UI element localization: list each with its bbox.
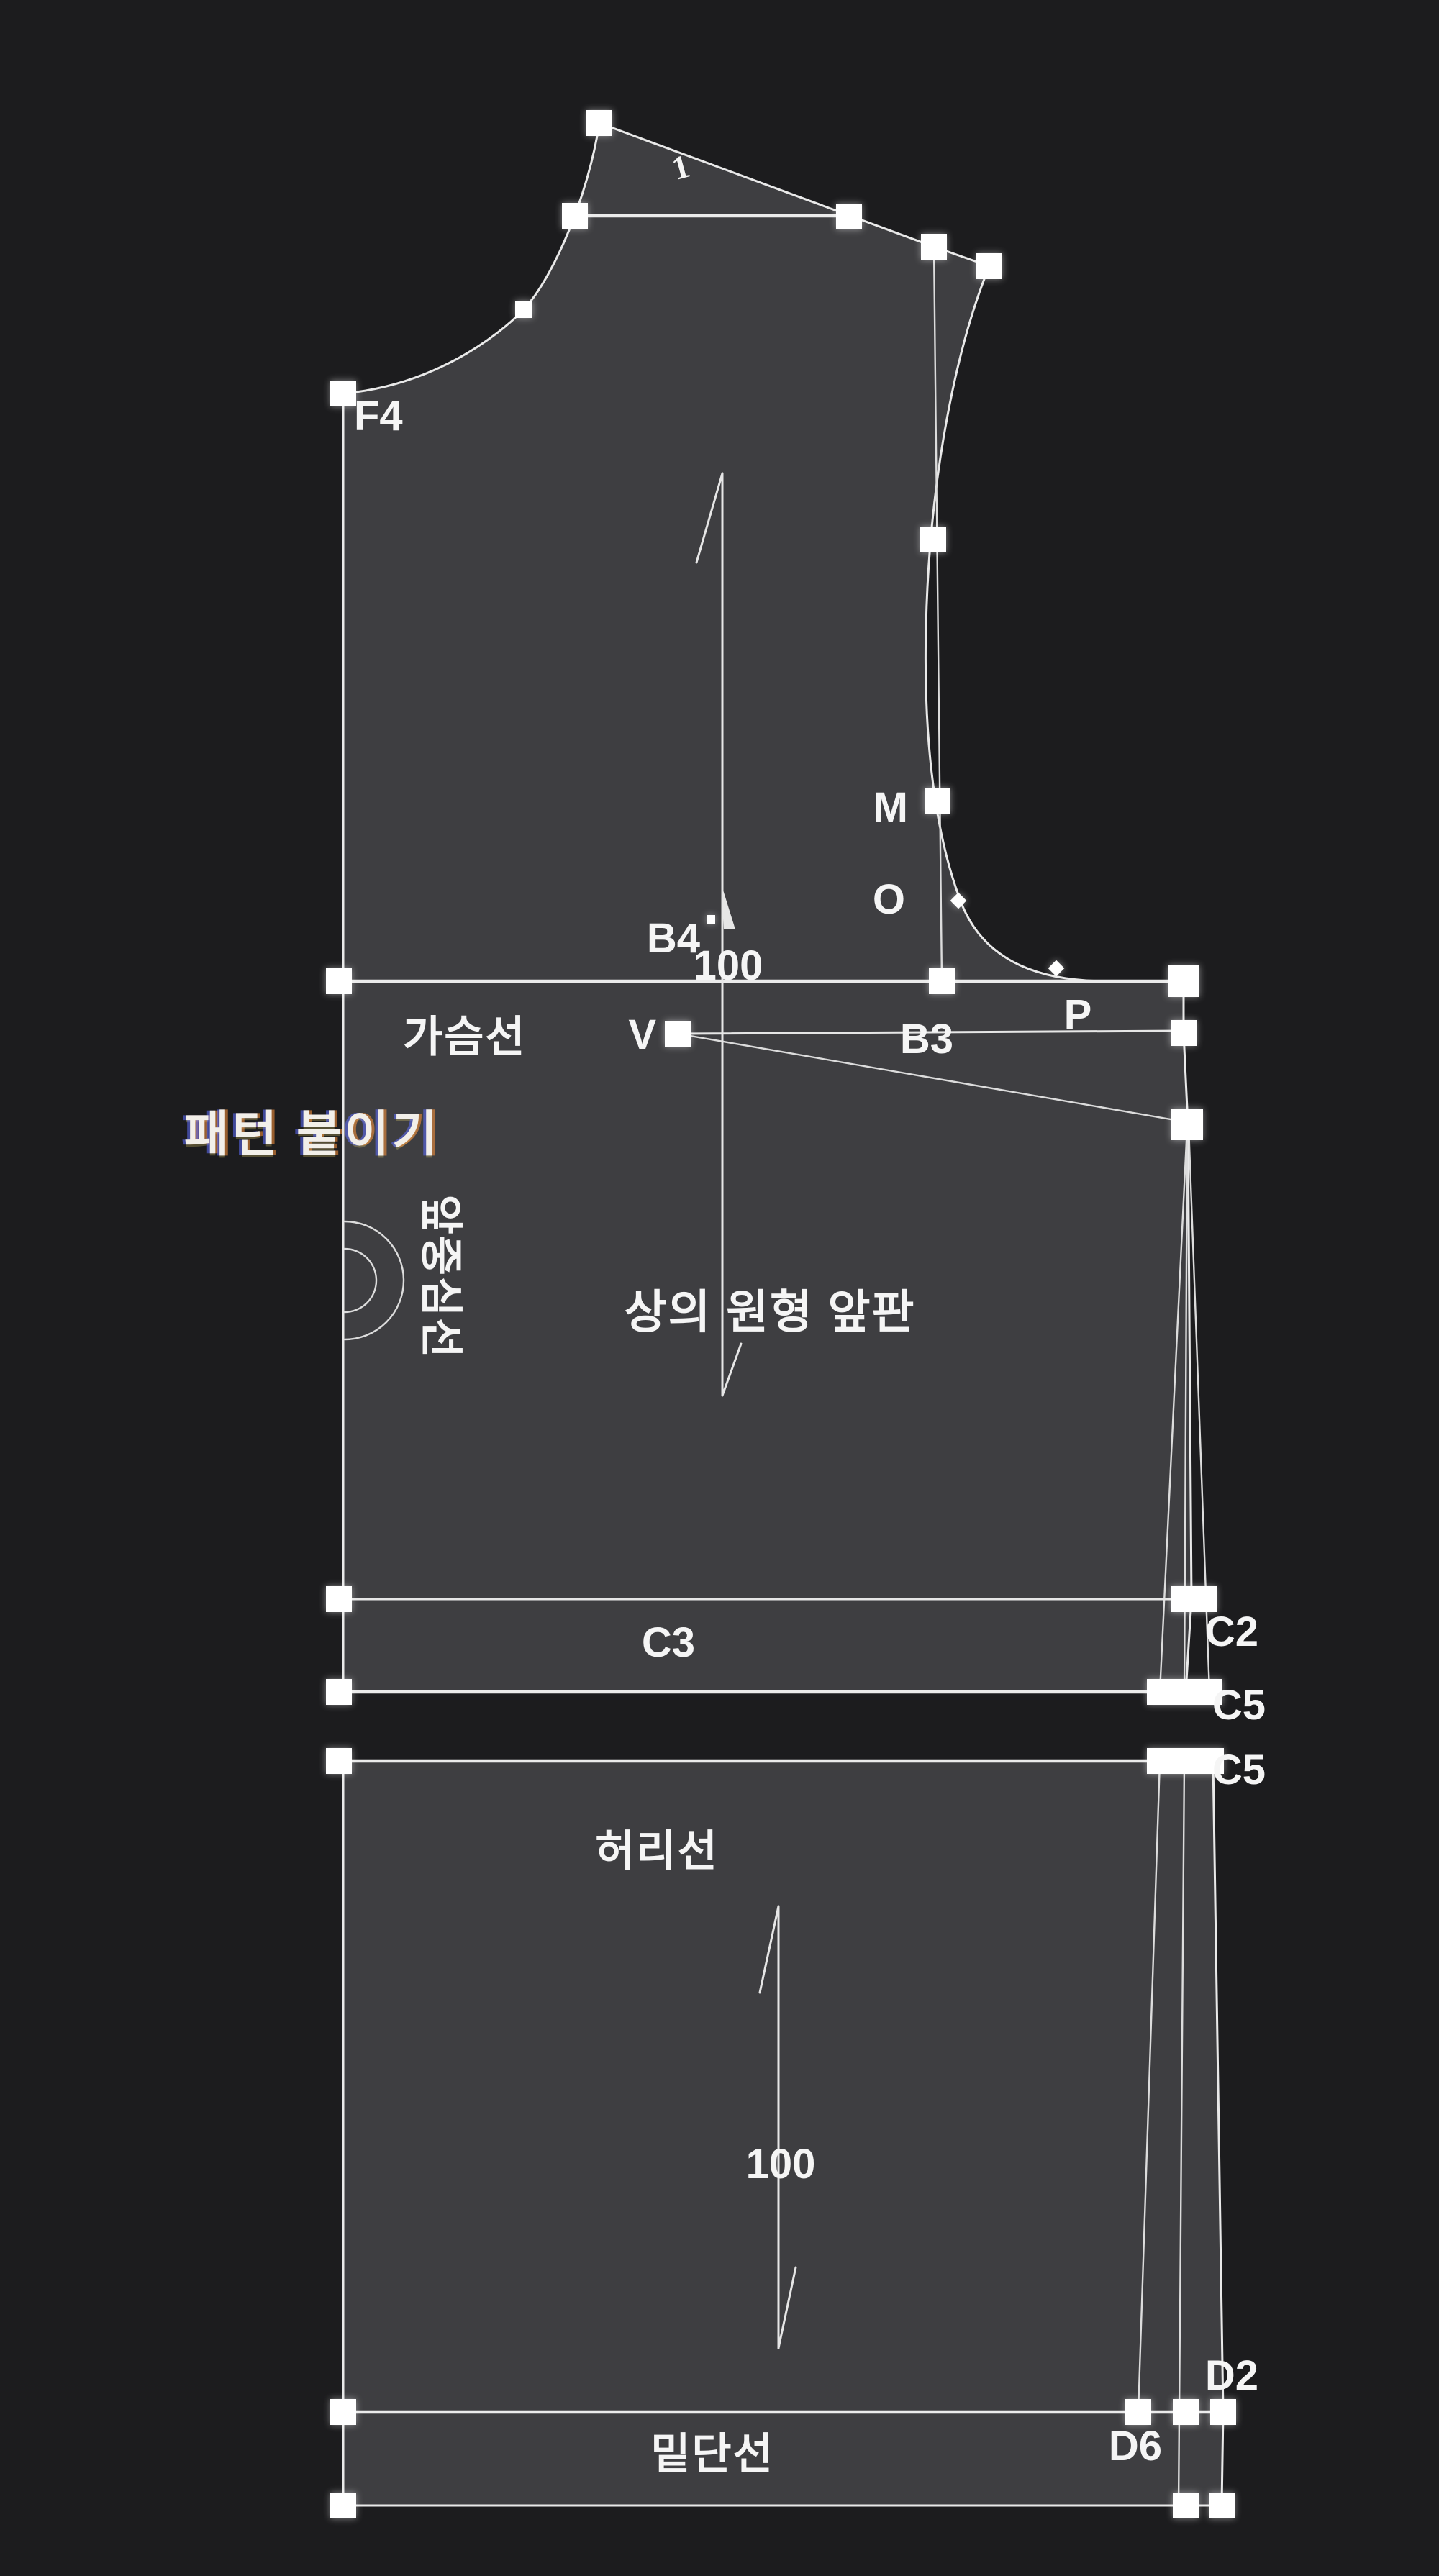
handle-bottom-left[interactable] bbox=[330, 2493, 356, 2518]
handle-dart-top[interactable] bbox=[1171, 1020, 1197, 1046]
label-b3: B3 bbox=[900, 1016, 953, 1062]
handle-armhole-upper[interactable] bbox=[920, 527, 946, 552]
label-o: O bbox=[873, 876, 905, 923]
label-dim-lower: 100 bbox=[746, 2141, 816, 2188]
handle-f4[interactable] bbox=[330, 381, 356, 406]
handle-dart-bottom[interactable] bbox=[1171, 1109, 1203, 1140]
label-f4: F4 bbox=[354, 393, 403, 440]
label-d6: D6 bbox=[1109, 2423, 1162, 2470]
label-c5-upper: C5 bbox=[1212, 1682, 1266, 1729]
label-waist-line: 허리선 bbox=[595, 1827, 719, 1875]
handle-c3-left[interactable] bbox=[326, 1586, 352, 1612]
bodice-front-lower-piece[interactable] bbox=[343, 1761, 1223, 2506]
label-b4: B4 bbox=[647, 915, 700, 962]
handle-m[interactable] bbox=[925, 788, 950, 814]
handle-chest-left[interactable] bbox=[326, 968, 352, 994]
handle-v-dart-apex[interactable] bbox=[665, 1021, 691, 1047]
label-c3: C3 bbox=[642, 1619, 695, 1666]
handle-c5up-left[interactable] bbox=[326, 1679, 352, 1705]
handle-b3[interactable] bbox=[929, 968, 955, 994]
floating-tool-label[interactable]: 패턴 붙이기 bbox=[184, 1107, 440, 1162]
label-hem-line: 밑단선 bbox=[650, 2430, 774, 2478]
label-dim-upper: 100 bbox=[694, 942, 763, 989]
label-v: V bbox=[628, 1011, 656, 1058]
piece-title: 상의 원형 앞판 bbox=[625, 1286, 916, 1338]
handle-shoulder-end[interactable] bbox=[921, 234, 947, 260]
handle-c5up-a[interactable] bbox=[1147, 1679, 1173, 1705]
handle-c5low-b[interactable] bbox=[1172, 1748, 1198, 1774]
label-p: P bbox=[1064, 991, 1092, 1038]
handle-b4-dot[interactable] bbox=[707, 915, 715, 924]
handle-hem-mid[interactable] bbox=[1173, 2399, 1199, 2425]
handle-armpit-diamond[interactable] bbox=[1048, 960, 1065, 977]
bodice-front-upper-piece[interactable] bbox=[343, 123, 1191, 1692]
handle-shoulder-tip[interactable] bbox=[976, 253, 1002, 279]
handle-chest-right[interactable] bbox=[1168, 965, 1199, 997]
handle-c5low-left[interactable] bbox=[326, 1748, 352, 1774]
handle-d2[interactable] bbox=[1210, 2399, 1236, 2425]
handle-neck-guide-right[interactable] bbox=[836, 204, 862, 229]
label-m: M bbox=[873, 784, 908, 831]
label-d2: D2 bbox=[1205, 2352, 1258, 2399]
handle-neck-guide-left[interactable] bbox=[562, 203, 588, 229]
label-c2: C2 bbox=[1205, 1608, 1258, 1655]
handle-neckline-mid[interactable] bbox=[515, 301, 532, 318]
handle-hem-left[interactable] bbox=[330, 2399, 356, 2425]
handle-d6[interactable] bbox=[1125, 2399, 1151, 2425]
handle-c5low-a[interactable] bbox=[1147, 1748, 1173, 1774]
handle-bottom-right[interactable] bbox=[1209, 2493, 1235, 2518]
label-chest-line: 가슴선 bbox=[403, 1013, 527, 1061]
pattern-canvas: F4 1 M O B4 100 가슴선 V B3 P 패턴 붙이기 앞중심선 상… bbox=[0, 0, 1439, 2576]
pattern-drawing-svg: F4 1 M O B4 100 가슴선 V B3 P 패턴 붙이기 앞중심선 상… bbox=[0, 0, 1439, 2576]
handle-bottom-mid[interactable] bbox=[1173, 2493, 1199, 2518]
handle-neck-point[interactable] bbox=[586, 110, 612, 136]
handle-c5up-b[interactable] bbox=[1171, 1679, 1197, 1705]
label-center-front: 앞중심선 bbox=[417, 1195, 465, 1360]
label-c5-lower: C5 bbox=[1212, 1747, 1266, 1793]
